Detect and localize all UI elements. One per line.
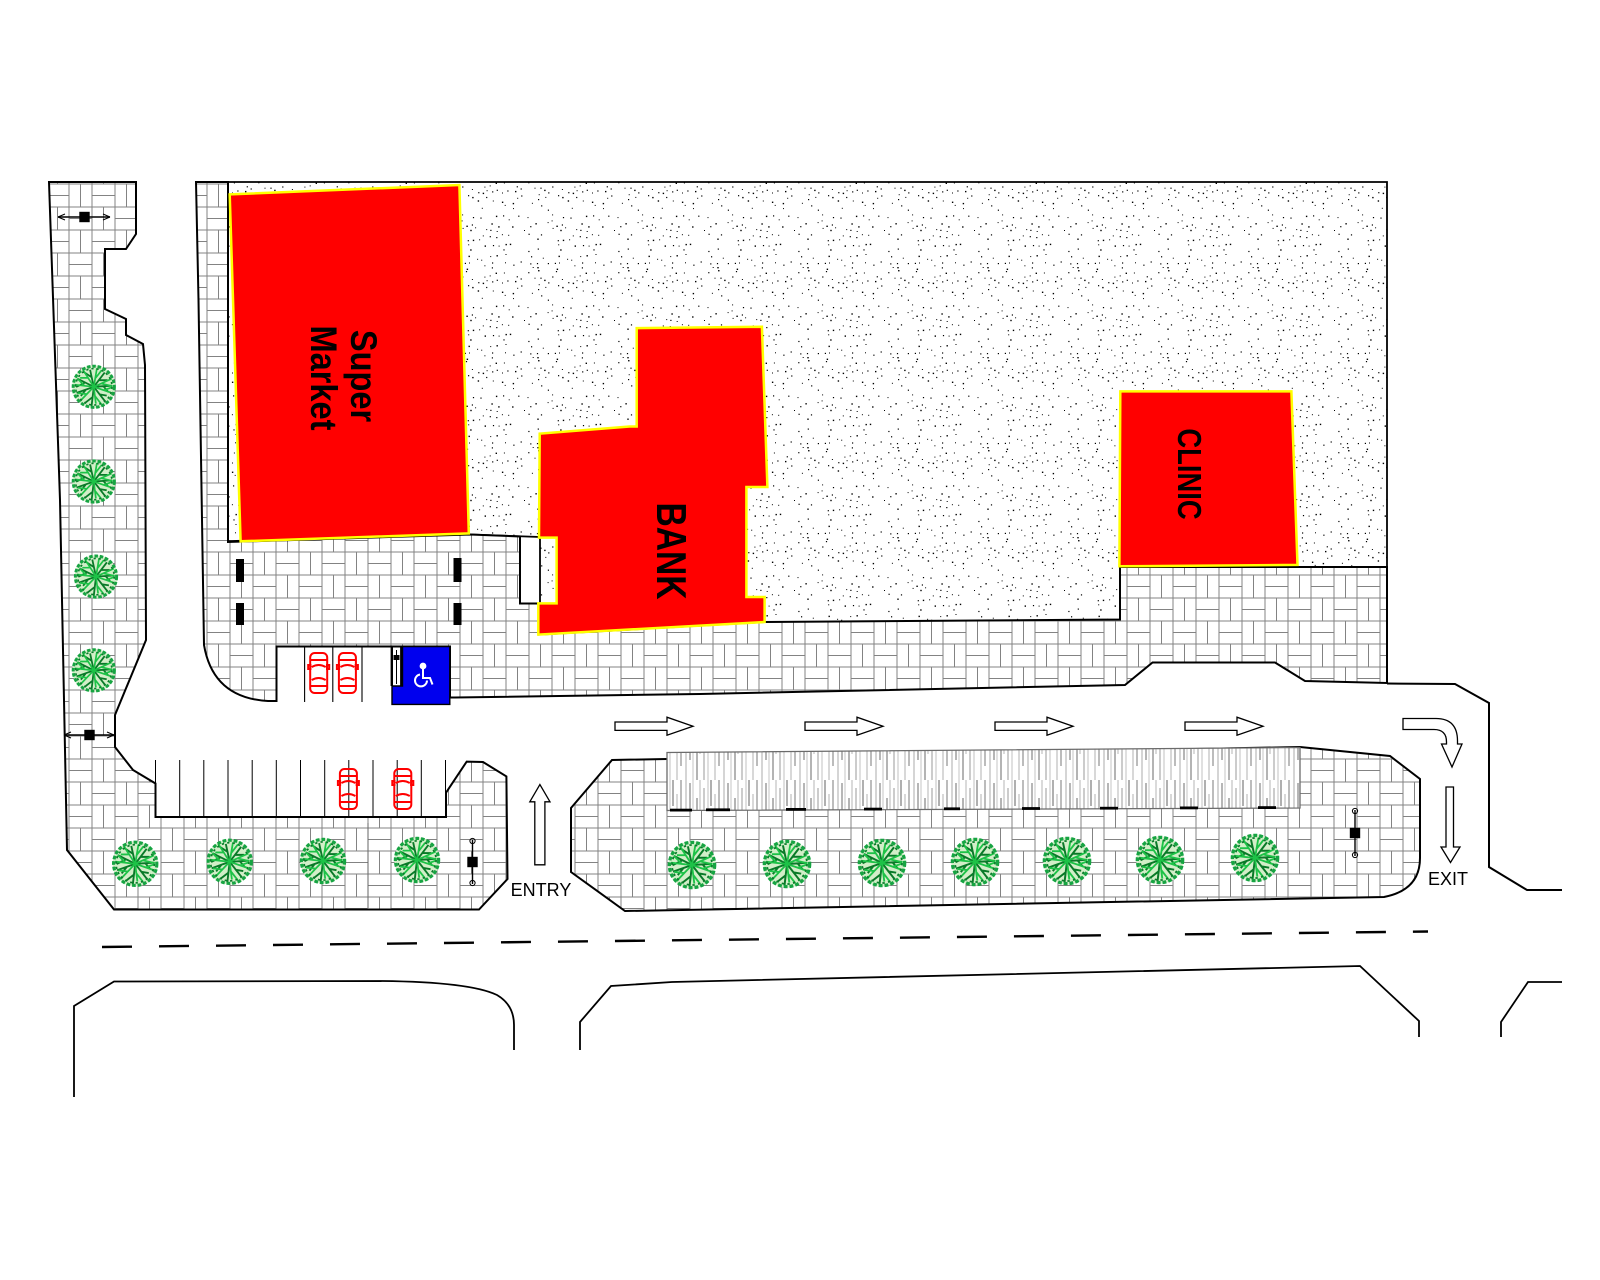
svg-text:EXIT: EXIT [1428,869,1468,889]
svg-text:BANK: BANK [647,502,693,599]
svg-text:Market: Market [303,326,344,431]
svg-text:CLINIC: CLINIC [1170,428,1206,519]
svg-text:Super: Super [343,330,384,423]
svg-text:ENTRY: ENTRY [511,880,572,900]
